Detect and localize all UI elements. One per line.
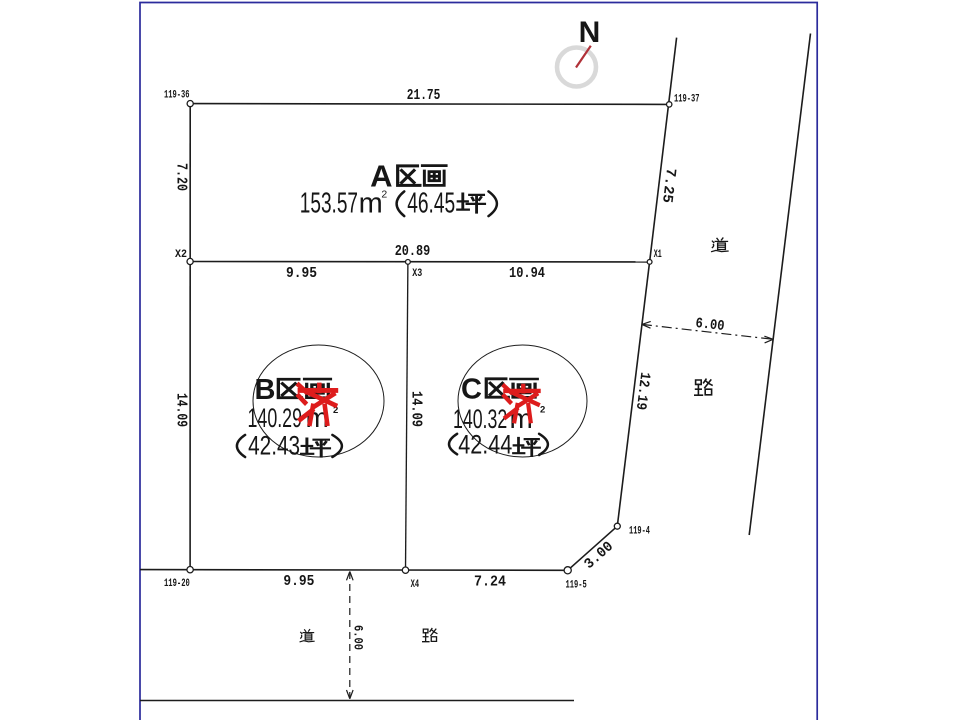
svg-text:119-36: 119-36	[164, 90, 190, 102]
svg-text:X4: X4	[411, 579, 420, 591]
svg-text:21.75: 21.75	[407, 88, 441, 104]
svg-text:X1: X1	[654, 249, 662, 261]
svg-text:m: m	[359, 188, 383, 220]
svg-text:119-20: 119-20	[164, 578, 190, 590]
svg-text:14.09: 14.09	[173, 393, 189, 427]
svg-text:14.09: 14.09	[407, 391, 423, 427]
svg-text:2: 2	[381, 188, 387, 200]
svg-text:119-37: 119-37	[674, 93, 700, 105]
svg-text:140.29: 140.29	[248, 403, 303, 433]
svg-text:9.95: 9.95	[286, 266, 317, 282]
svg-text:B: B	[255, 374, 276, 406]
svg-text:X3: X3	[412, 268, 422, 280]
svg-text:X2: X2	[175, 249, 187, 261]
svg-text:2: 2	[540, 405, 545, 416]
svg-text:9.95: 9.95	[283, 574, 314, 590]
svg-text:153.57: 153.57	[300, 188, 358, 220]
svg-text:6.00: 6.00	[350, 625, 365, 650]
svg-text:7.20: 7.20	[173, 163, 189, 191]
svg-text:42.43: 42.43	[248, 431, 300, 461]
svg-text:119-4: 119-4	[629, 526, 650, 538]
svg-text:6.00: 6.00	[695, 316, 726, 335]
svg-text:C: C	[461, 374, 482, 406]
svg-text:20.89: 20.89	[395, 244, 431, 260]
svg-text:46.45: 46.45	[407, 188, 455, 220]
svg-text:N: N	[579, 16, 601, 49]
svg-text:10.94: 10.94	[509, 266, 545, 282]
svg-text:42.44: 42.44	[458, 430, 512, 460]
svg-text:119-5: 119-5	[566, 580, 587, 592]
svg-text:7.24: 7.24	[474, 575, 506, 591]
